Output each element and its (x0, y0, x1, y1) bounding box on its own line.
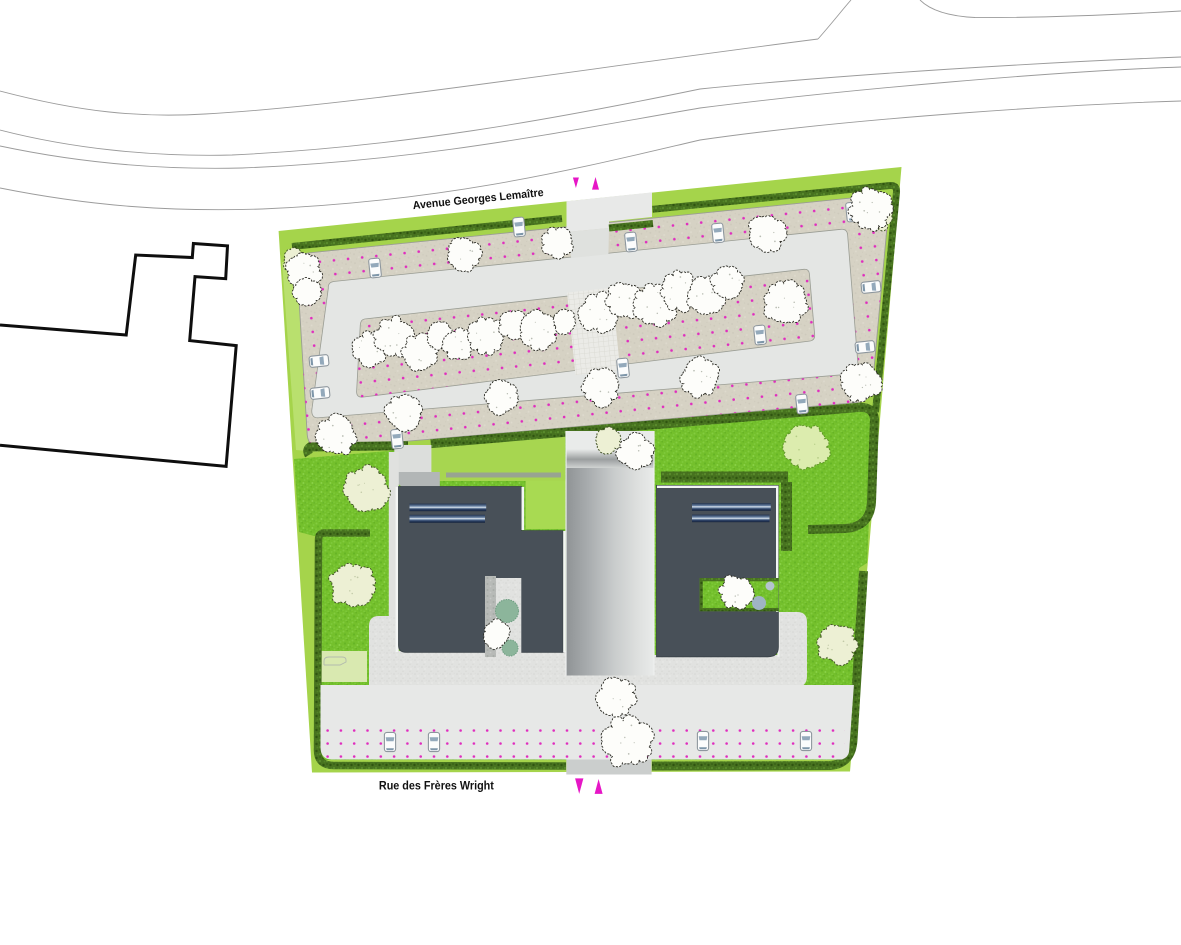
svg-text:Rue des Frères Wright: Rue des Frères Wright (379, 780, 494, 792)
